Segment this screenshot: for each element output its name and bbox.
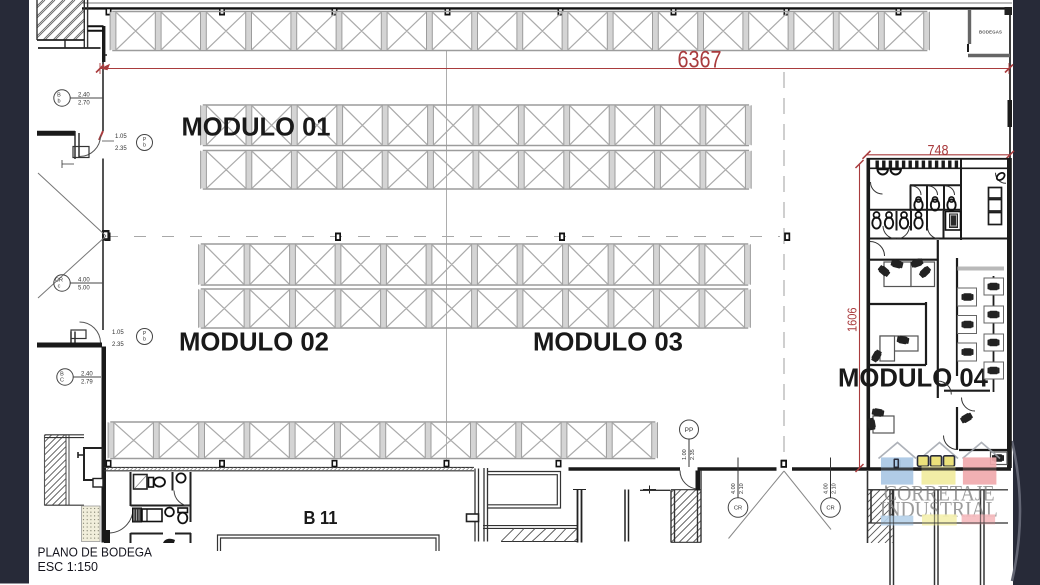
svg-text:MODULO 03: MODULO 03: [533, 329, 683, 357]
svg-text:1.05: 1.05: [115, 134, 127, 140]
svg-text:2.10: 2.10: [832, 483, 838, 494]
svg-text:b: b: [57, 99, 60, 105]
svg-text:2.35: 2.35: [690, 449, 696, 460]
svg-text:2.35: 2.35: [112, 342, 124, 348]
svg-text:B 11: B 11: [304, 507, 338, 528]
svg-text:2.70: 2.70: [78, 101, 90, 107]
svg-text:1606: 1606: [845, 308, 860, 333]
svg-text:2.40: 2.40: [78, 93, 90, 99]
svg-text:CR: CR: [734, 506, 742, 512]
svg-text:4.00: 4.00: [731, 483, 737, 494]
svg-text:MODULO 02: MODULO 02: [179, 329, 329, 357]
svg-text:2.40: 2.40: [81, 372, 93, 378]
svg-text:MODULO 04: MODULO 04: [838, 365, 989, 393]
svg-text:ESC 1:150: ESC 1:150: [38, 559, 99, 574]
svg-text:6367: 6367: [678, 47, 722, 74]
svg-text:2.35: 2.35: [115, 146, 127, 152]
svg-text:1.00: 1.00: [682, 449, 688, 460]
svg-text:5.00: 5.00: [78, 286, 90, 292]
svg-text:PLANO DE BODEGA: PLANO DE BODEGA: [38, 545, 153, 560]
svg-text:1.05: 1.05: [112, 330, 124, 336]
svg-text:b: b: [143, 143, 146, 149]
svg-text:MODULO 01: MODULO 01: [182, 114, 331, 142]
svg-text:2.10: 2.10: [739, 483, 745, 494]
svg-text:CR: CR: [826, 506, 834, 512]
svg-text:BODEGAS: BODEGAS: [979, 30, 1002, 35]
svg-text:4.00: 4.00: [824, 483, 830, 494]
svg-text:4.00: 4.00: [78, 278, 90, 284]
svg-text:b: b: [143, 337, 146, 343]
svg-text:PP: PP: [685, 427, 694, 434]
svg-text:2.79: 2.79: [81, 380, 93, 386]
svg-text:748: 748: [928, 143, 949, 159]
svg-text:C: C: [60, 378, 64, 384]
svg-text:c: c: [58, 284, 61, 290]
